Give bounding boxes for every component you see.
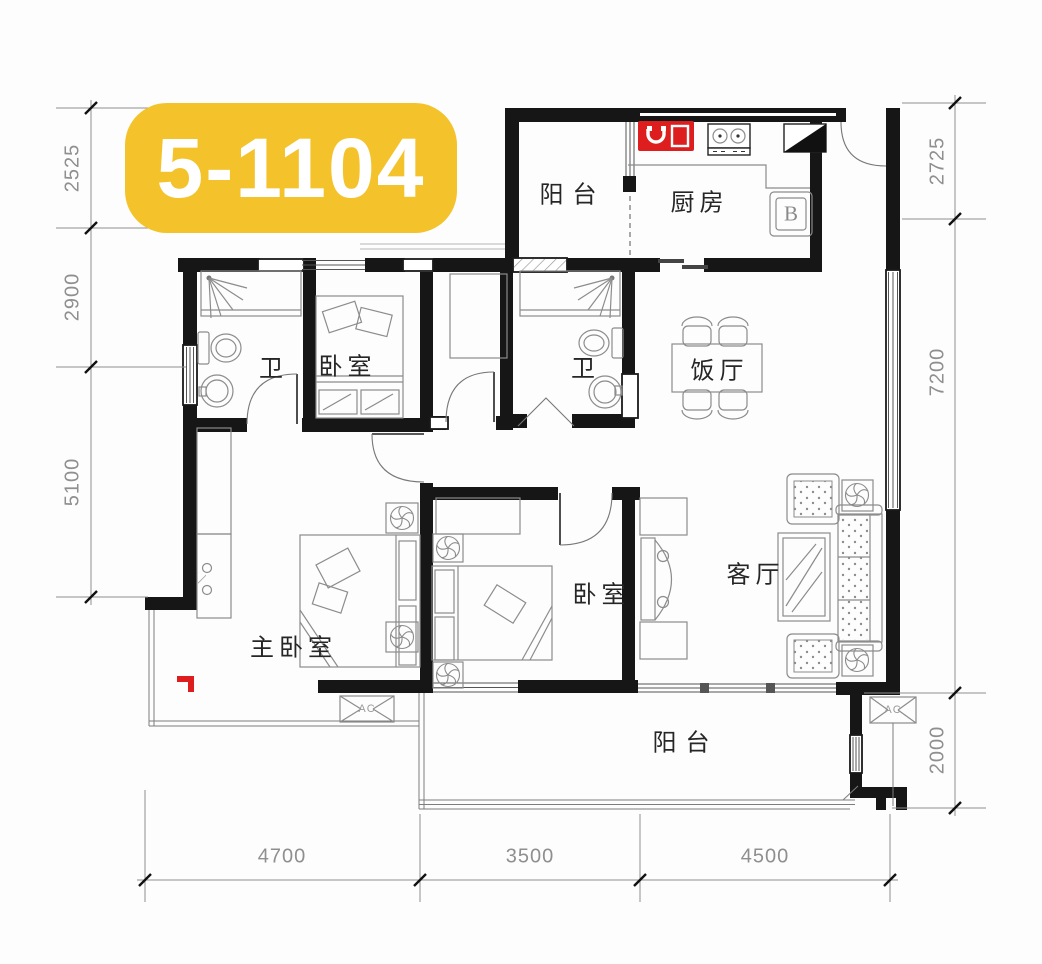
plant-icon (390, 506, 414, 530)
counter-corner-icon (784, 124, 826, 152)
dim-bottom-3: 4500 (741, 846, 790, 869)
bathroom-mid (520, 271, 623, 408)
kitchen-slider (658, 259, 684, 263)
room-label-bedroom-mid: 卧室 (568, 575, 631, 610)
shower-area (201, 271, 301, 316)
room-label-bath-mid: 卫 (566, 349, 600, 384)
unit-number-badge: 5-1104 (125, 103, 457, 233)
stove-icon (708, 124, 750, 155)
chair (718, 390, 748, 419)
dim-right-2: 7200 (927, 348, 950, 397)
tv-cabinet (640, 498, 687, 659)
duct (430, 417, 448, 429)
door-mullion (766, 683, 775, 693)
armchair (787, 474, 839, 524)
kitchen-slider (682, 265, 708, 269)
dim-left-3: 5100 (62, 458, 85, 507)
shower-area (520, 271, 620, 316)
room-label-bedroom-top: 卧室 (314, 347, 377, 382)
toilet-icon (198, 332, 241, 364)
dim-bottom-1: 4700 (258, 846, 307, 869)
bed (432, 566, 552, 660)
ac-label-left: AC (358, 703, 375, 715)
entry-door-arc (841, 122, 886, 166)
dim-left-2: 2900 (62, 273, 85, 322)
floorplan-page: 5-1104 阳台 厨房 卫 卧室 卫 饭厅 主卧室 卧室 客厅 阳台 B AC… (0, 0, 1042, 964)
closet-door-arc (446, 372, 494, 422)
plant-icon (390, 625, 414, 649)
window (403, 259, 433, 271)
duct (622, 374, 638, 418)
ac-label-right: AC (884, 704, 901, 716)
dim-right-1: 2725 (927, 137, 950, 186)
chair (718, 317, 748, 346)
dim-right-3: 2000 (927, 726, 950, 775)
room-label-balcony-top: 阳台 (531, 175, 606, 210)
window (258, 259, 304, 271)
red-corner-mark (177, 676, 194, 692)
chair (682, 390, 712, 419)
master-door-arc (372, 434, 424, 482)
wardrobe (197, 428, 231, 534)
bedroom-mid-door-arc (560, 493, 612, 545)
chair (682, 317, 712, 346)
plant-icon (436, 536, 460, 560)
living-set (778, 474, 882, 678)
room-label-bath-left: 卫 (254, 349, 288, 384)
door-mullion (700, 683, 709, 693)
ac-units (177, 676, 916, 806)
kitchen-sink-icon (638, 121, 694, 151)
room-label-master-bedroom: 主卧室 (245, 628, 337, 663)
room-label-kitchen: 厨房 (666, 183, 729, 218)
sofa (836, 505, 882, 651)
plant-icon (845, 483, 869, 507)
room-label-dining: 饭厅 (686, 351, 749, 386)
armchair (787, 634, 839, 678)
dim-left-1: 2525 (62, 144, 85, 193)
bedroom-mid-furniture (432, 498, 552, 688)
wardrobe (436, 498, 520, 534)
bathroom-left (198, 271, 301, 407)
water-heater-label: B (784, 202, 798, 227)
room-label-balcony-bottom: 阳台 (644, 723, 719, 758)
room-label-living: 客厅 (722, 555, 785, 590)
coffee-table (778, 533, 830, 621)
washbasin-icon (199, 375, 233, 407)
wardrobe (450, 274, 507, 358)
dim-bottom-2: 3500 (506, 846, 555, 869)
